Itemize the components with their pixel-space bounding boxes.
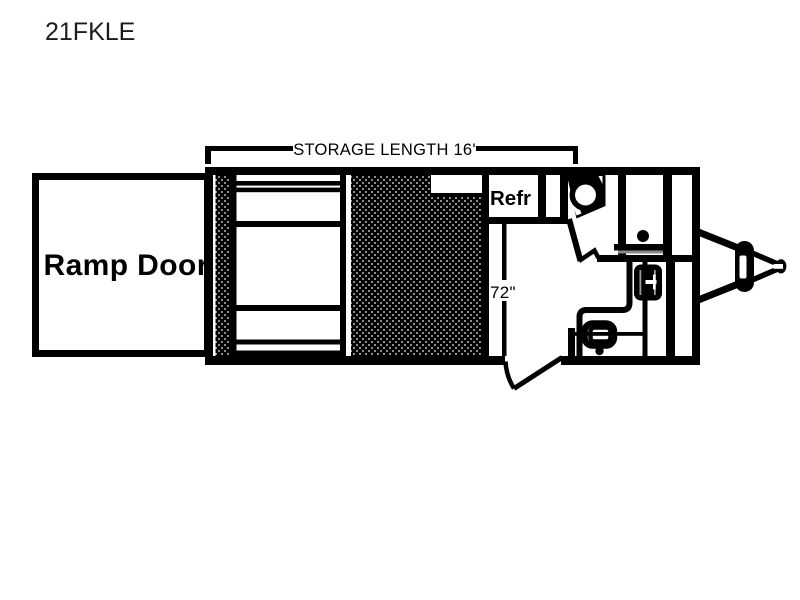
svg-text:72": 72" [490,283,516,302]
svg-text:Ramp Door: Ramp Door [44,249,209,282]
svg-text:21FKLE: 21FKLE [45,18,135,46]
svg-text:Refr: Refr [490,187,531,210]
svg-text:STORAGE LENGTH 16': STORAGE LENGTH 16' [293,141,475,159]
